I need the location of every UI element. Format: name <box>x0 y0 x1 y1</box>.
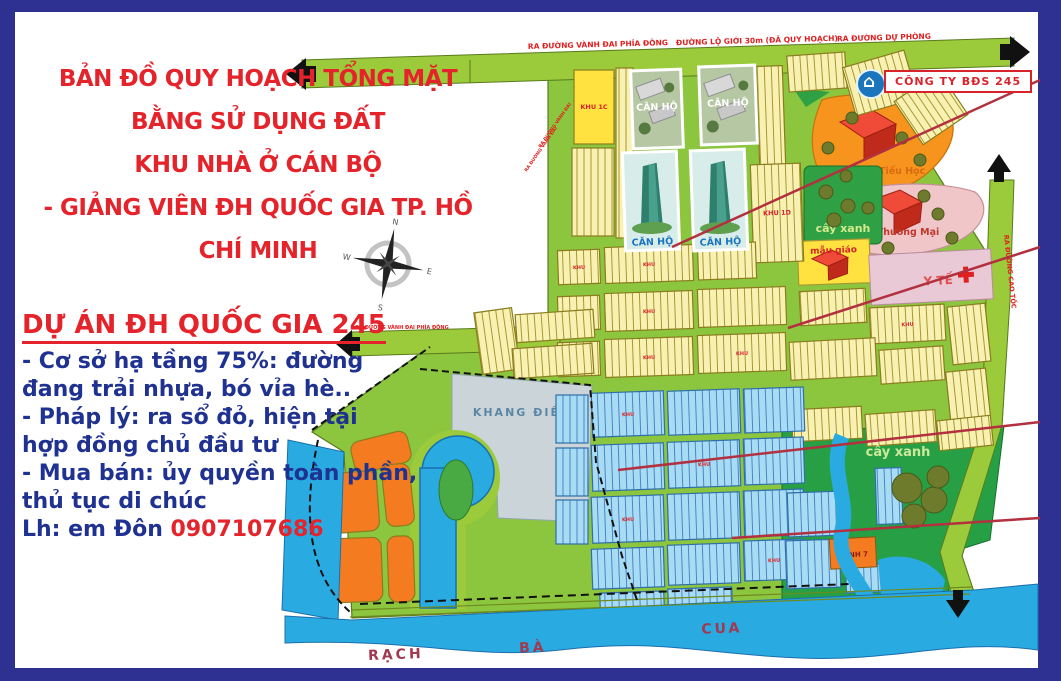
parcel-label: KHU 1D <box>763 208 792 217</box>
parcel-yellow <box>756 66 786 169</box>
parcel-label: KHU <box>643 309 655 315</box>
parcel-orange <box>387 536 415 603</box>
lake-island <box>439 460 473 520</box>
contact-label: Lh: em Đôn <box>22 517 171 542</box>
parcel-blue <box>667 389 740 435</box>
project-detail-line: đang trải nhựa, bó vỉa hè.. <box>22 376 352 404</box>
parcel-blue <box>667 492 741 540</box>
parcel-yellow <box>512 343 594 379</box>
parcel-blue <box>743 387 804 433</box>
park-label: cây xanh <box>866 445 931 460</box>
title-line-1: BẢN ĐỒ QUY HOẠCH TỔNG MẶT BẰNG SỬ DỤNG Đ… <box>28 58 488 144</box>
parcel-label: KHU <box>643 262 655 268</box>
project-details: - Cơ sở hạ tầng 75%: đườngđang trải nhựa… <box>22 348 352 516</box>
project-detail-line: - Cơ sở hạ tầng 75%: đường <box>22 348 352 376</box>
apartment-label: CĂN HỘ <box>707 96 749 109</box>
parcel-yellow <box>572 148 614 236</box>
parcel-blue <box>667 543 740 585</box>
parcel-yellow <box>946 368 991 420</box>
apartment-label: CĂN HỘ <box>699 235 741 248</box>
parcel-yellow <box>515 309 595 342</box>
project-detail-line: - Mua bán: ủy quyền toàn phần, <box>22 460 352 488</box>
parcel-label: KHU <box>643 355 655 361</box>
apartment-label: CĂN HỘ <box>636 100 678 113</box>
arrow-highway-top-icon <box>987 154 1011 182</box>
project-detail-line: hợp đồng chủ đầu tư <box>22 432 352 460</box>
parcel-label: KHU <box>698 462 710 468</box>
parcel-blue <box>556 448 588 496</box>
parcel-yellow <box>789 338 877 380</box>
title-line-3: - GIẢNG VIÊN ĐH QUỐC GIA TP. HỒ CHÍ MINH <box>28 187 488 273</box>
project-detail-line: - Pháp lý: ra sổ đỏ, hiện tại <box>22 404 352 432</box>
parcel-label: KHU <box>573 265 585 271</box>
parcel-blue <box>591 547 664 589</box>
parcel-yellow <box>947 303 991 365</box>
parcel-blue <box>743 437 805 485</box>
river-label: BÀ <box>519 639 547 657</box>
commercial-label: Thương Mại <box>877 227 940 238</box>
project-heading: DỰ ÁN ĐH QUỐC GIA 245 <box>22 310 386 344</box>
kindergarten-area: mẫu giáo <box>797 239 870 285</box>
company-badge: CÔNG TY BĐS 245 <box>884 70 1032 93</box>
parcel-yellow <box>697 286 786 327</box>
house-icon <box>856 69 886 99</box>
parcel-label: KHU <box>736 351 748 357</box>
river-label: RẠCH <box>368 646 424 664</box>
kindergarten-label: mẫu giáo <box>810 244 857 257</box>
project-detail-line: thủ tục di chúc <box>22 488 352 516</box>
small-park-label: cây xanh <box>816 222 871 235</box>
parcel-yellow <box>879 346 945 384</box>
contact-phone: 0907107686 <box>171 517 324 542</box>
contact-line: Lh: em Đôn 0907107686 <box>22 516 352 544</box>
parcel-label: KHU <box>622 517 634 523</box>
parcel-label: KHU <box>901 322 913 329</box>
parcel-label: KHU 1C <box>580 103 608 111</box>
poster-title: BẢN ĐỒ QUY HOẠCH TỔNG MẶT BẰNG SỬ DỤNG Đ… <box>28 58 488 273</box>
river-label: CUA <box>701 620 743 637</box>
parcel-yellow <box>787 52 847 92</box>
poster: KHANG ĐIỀN Trường Tiểu Học Thương Mại câ… <box>0 0 1061 681</box>
project-info-panel: DỰ ÁN ĐH QUỐC GIA 245 - Cơ sở hạ tầng 75… <box>22 310 352 544</box>
title-line-2: KHU NHÀ Ở CÁN BỘ <box>28 144 488 187</box>
parcel-label: KHU <box>768 558 780 564</box>
parcel-blue <box>556 395 588 443</box>
parcel-label: KHU <box>622 412 634 418</box>
parcel-blue <box>556 500 588 544</box>
apartment-label: CĂN HỘ <box>631 235 673 248</box>
